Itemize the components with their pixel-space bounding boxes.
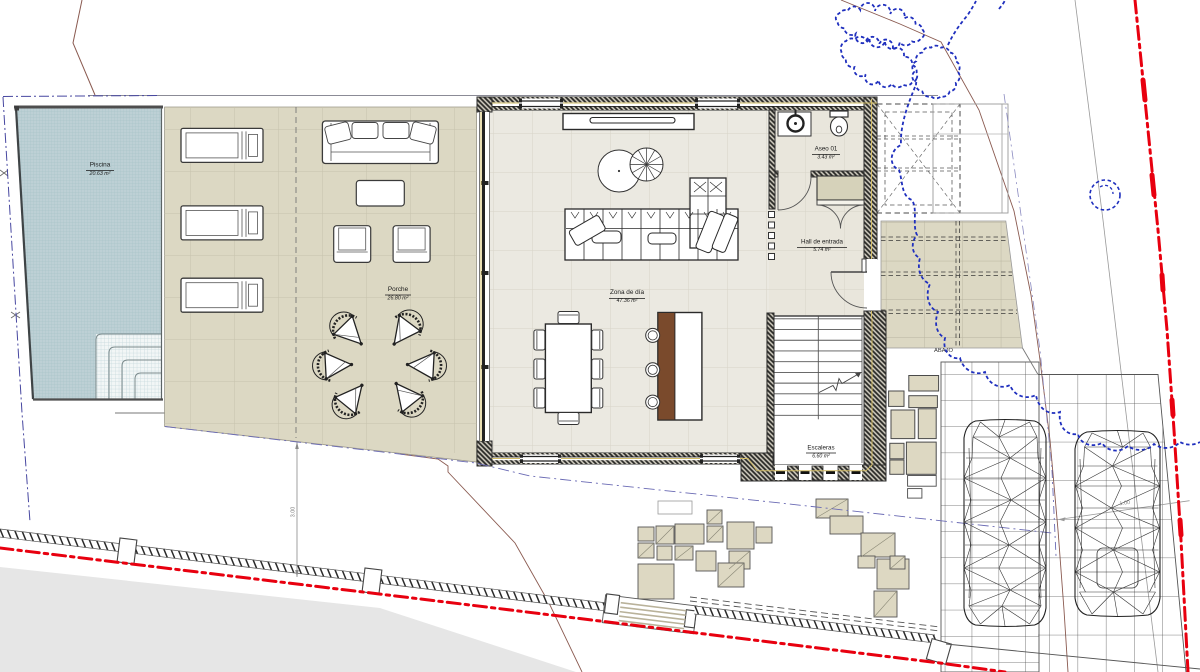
svg-text:5.74 m²: 5.74 m² [813, 247, 831, 253]
svg-text:20.63 m²: 20.63 m² [89, 171, 111, 177]
svg-text:3.43 m²: 3.43 m² [817, 155, 835, 161]
svg-text:Porche: Porche [388, 286, 409, 293]
svg-text:Zona de día: Zona de día [610, 289, 645, 296]
svg-text:26.80 m²: 26.80 m² [387, 296, 409, 302]
svg-text:6.60 m²: 6.60 m² [812, 454, 830, 460]
svg-text:Hall de entrada: Hall de entrada [801, 239, 844, 246]
svg-text:Piscina: Piscina [90, 162, 111, 169]
svg-text:Escaleras: Escaleras [807, 445, 834, 452]
svg-text:47.36 m²: 47.36 m² [617, 298, 638, 304]
svg-text:Aseo 01: Aseo 01 [815, 146, 838, 153]
svg-text:3.00: 3.00 [291, 507, 297, 518]
svg-text:ABAJO: ABAJO [934, 348, 953, 354]
